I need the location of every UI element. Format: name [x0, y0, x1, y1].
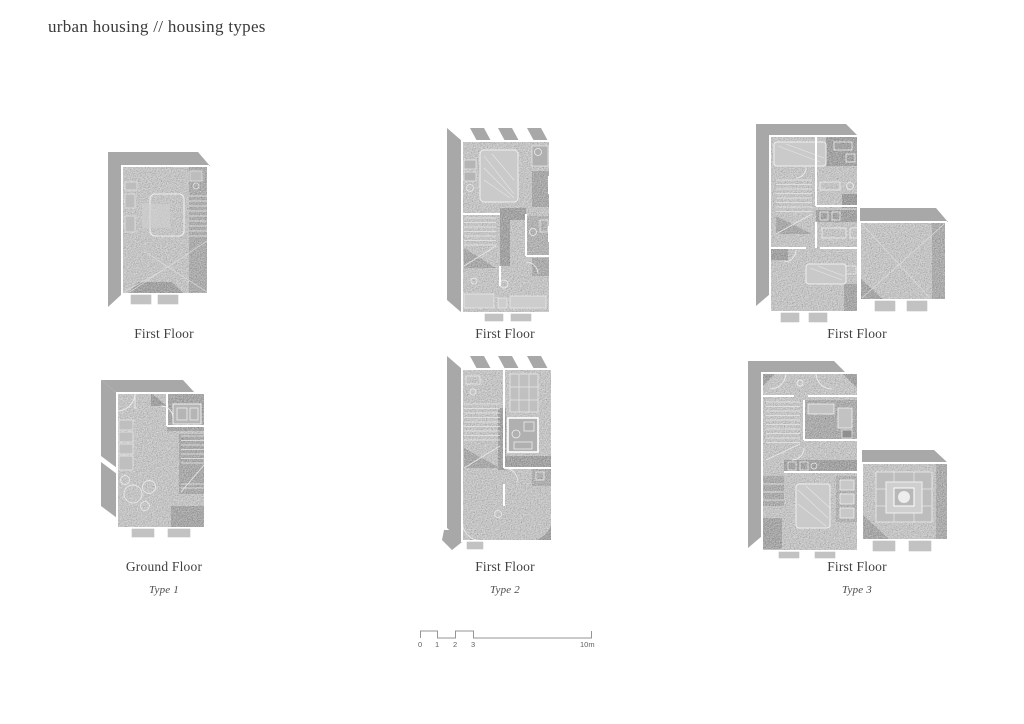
floorplan-drawing: [440, 348, 566, 554]
caption-floor-3: First Floor: [777, 326, 937, 342]
floorplan-drawing: [750, 116, 964, 328]
scale-bar-line: [420, 629, 596, 639]
scale-tick-0: 0: [418, 640, 422, 649]
floorplan-type2-lower-floor: [440, 348, 566, 559]
floorplan-type1-ground-floor: [95, 376, 221, 551]
floorplan-type2-first-floor: [440, 116, 566, 329]
floorplan-type3-first-floor: [750, 116, 964, 333]
scale-tick-1: 1: [435, 640, 439, 649]
floorplan-drawing: [100, 146, 220, 318]
caption-type-2: Type 2: [425, 584, 585, 596]
caption-floor-6: First Floor: [777, 559, 937, 575]
floorplan-type1-first-floor: [100, 146, 220, 323]
caption-type-3: Type 3: [777, 584, 937, 596]
caption-type-1: Type 1: [84, 584, 244, 596]
scale-tick-10m: 10m: [580, 640, 595, 649]
scale-tick-3: 3: [471, 640, 475, 649]
scale-bar: 0 1 2 3 10m: [420, 629, 596, 651]
drawing-sheet: urban housing // housing types: [0, 0, 1024, 724]
caption-floor-1: First Floor: [84, 326, 244, 342]
caption-floor-2: First Floor: [425, 326, 585, 342]
floorplan-drawing: [440, 116, 566, 324]
caption-floor-4: Ground Floor: [84, 559, 244, 575]
floorplan-drawing: [738, 356, 964, 560]
caption-floor-5: First Floor: [425, 559, 585, 575]
scale-tick-2: 2: [453, 640, 457, 649]
page-title: urban housing // housing types: [48, 17, 266, 37]
floorplan-drawing: [95, 376, 221, 546]
floorplan-type3-lower-floor: [738, 356, 964, 565]
